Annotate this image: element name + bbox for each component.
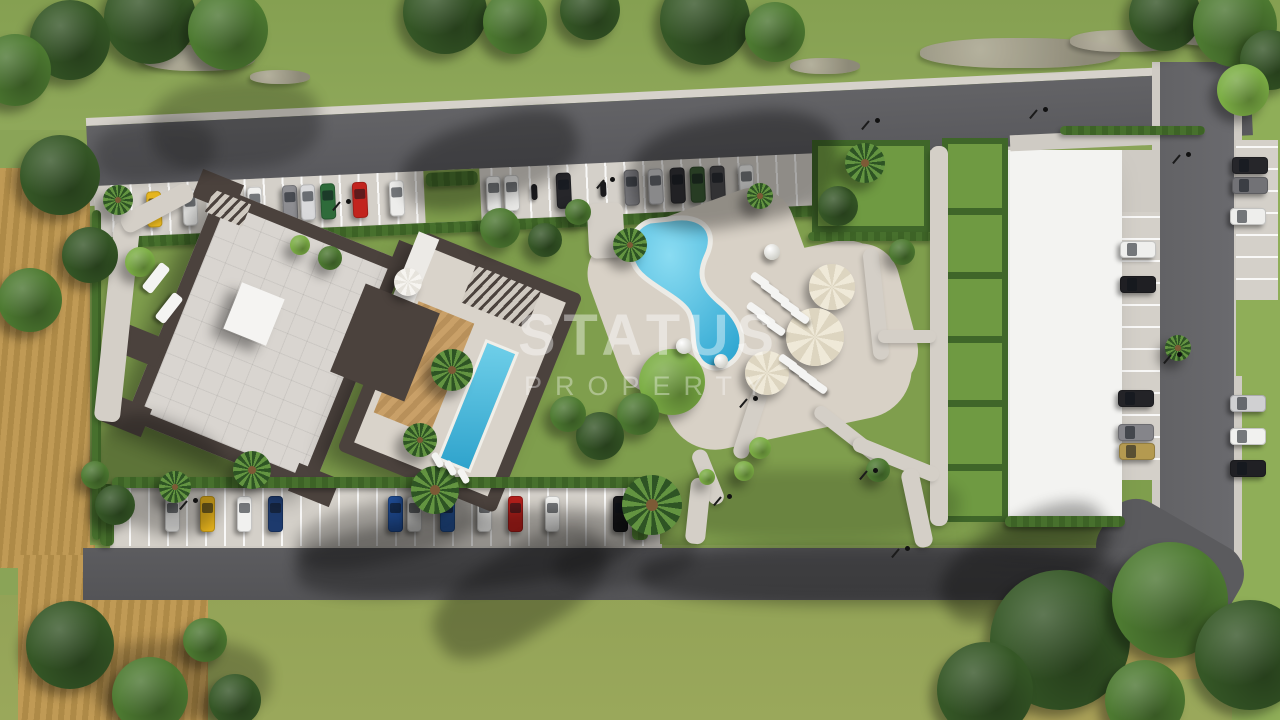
hedge-row xyxy=(948,400,1002,407)
tree xyxy=(528,223,562,257)
tree xyxy=(290,235,310,255)
lamppost xyxy=(727,494,732,499)
tree xyxy=(745,2,805,62)
tree xyxy=(183,618,227,662)
car-windshield xyxy=(239,503,250,513)
decor-sphere xyxy=(676,338,692,354)
car xyxy=(1118,390,1154,407)
palm-tree xyxy=(403,423,437,457)
palm-tree xyxy=(103,185,133,215)
tree xyxy=(20,135,100,215)
car xyxy=(1120,241,1156,258)
site-plan-rendering: STATUS PROPERTY xyxy=(0,0,1280,720)
car-windshield xyxy=(284,192,295,202)
lamppost xyxy=(346,199,351,204)
tree xyxy=(125,247,155,277)
lamppost xyxy=(1043,107,1048,112)
car-windshield xyxy=(1237,210,1247,223)
tree xyxy=(866,458,890,482)
car xyxy=(1118,424,1154,441)
hedge-row xyxy=(948,336,1002,343)
lawn-plots xyxy=(942,138,1008,522)
tree xyxy=(81,461,109,489)
parasol-umbrella xyxy=(394,268,422,296)
lamppost xyxy=(1186,152,1191,157)
tree xyxy=(0,268,62,332)
tree xyxy=(62,227,118,283)
tree xyxy=(749,437,771,459)
hedge xyxy=(1060,126,1205,135)
car-windshield xyxy=(354,189,365,199)
hedge xyxy=(808,232,933,241)
tree xyxy=(95,485,135,525)
car-windshield xyxy=(1127,278,1137,291)
rock-outcrop xyxy=(250,70,310,84)
car xyxy=(1232,177,1268,194)
palm-tree xyxy=(613,228,647,262)
lamppost xyxy=(610,177,615,182)
car-windshield xyxy=(1127,243,1137,256)
palm-tree xyxy=(431,349,473,391)
right-road xyxy=(1160,62,1234,567)
hedge-row xyxy=(948,464,1002,471)
car-windshield xyxy=(1125,426,1135,439)
car xyxy=(1232,157,1268,174)
car-windshield xyxy=(1237,462,1247,475)
car xyxy=(352,182,369,219)
car-windshield xyxy=(322,190,333,200)
tree xyxy=(1217,64,1269,116)
car xyxy=(1119,443,1155,460)
tree xyxy=(550,396,586,432)
car-windshield xyxy=(558,179,569,189)
tree xyxy=(699,469,715,485)
car xyxy=(300,184,317,221)
car xyxy=(320,183,337,220)
lamppost xyxy=(1177,352,1182,357)
rock-outcrop xyxy=(790,58,860,74)
car xyxy=(1230,208,1266,225)
tree xyxy=(734,461,754,481)
decor-sphere xyxy=(764,244,780,260)
car-windshield xyxy=(1125,392,1135,405)
tree xyxy=(209,674,261,720)
car xyxy=(1230,460,1266,477)
lamppost xyxy=(873,468,878,473)
lamppost xyxy=(905,546,910,551)
car-windshield xyxy=(1237,397,1247,410)
car-windshield xyxy=(270,503,281,513)
tree xyxy=(480,208,520,248)
walkway xyxy=(878,330,936,343)
hedge-row xyxy=(948,208,1002,215)
palm-tree xyxy=(233,451,271,489)
car xyxy=(1230,395,1266,412)
hedge xyxy=(1005,516,1125,527)
palm-tree xyxy=(622,475,682,535)
car-windshield xyxy=(1237,430,1247,443)
decor-sphere xyxy=(714,354,728,368)
tree xyxy=(565,199,591,225)
palm-tree xyxy=(747,183,773,209)
palm-tree xyxy=(845,143,885,183)
palm-tree xyxy=(159,471,191,503)
car xyxy=(268,496,283,532)
tree xyxy=(26,601,114,689)
tree xyxy=(617,393,659,435)
walkway-right-of-building xyxy=(1122,150,1160,212)
hedge-row xyxy=(948,272,1002,279)
car-windshield xyxy=(1239,159,1249,172)
tree xyxy=(318,246,342,270)
hedge xyxy=(112,477,660,488)
parasol-umbrella xyxy=(809,264,855,310)
car-windshield xyxy=(302,191,313,201)
tree xyxy=(889,239,915,265)
white-building xyxy=(1008,150,1122,518)
tree xyxy=(818,186,858,226)
car xyxy=(1230,428,1266,445)
car-windshield xyxy=(391,187,402,197)
lamppost xyxy=(193,498,198,503)
car-windshield xyxy=(1126,445,1136,458)
grass-square xyxy=(1236,300,1278,376)
car-windshield xyxy=(1239,179,1249,192)
car xyxy=(237,496,252,532)
lamppost xyxy=(753,396,758,401)
lamppost xyxy=(875,118,880,123)
car xyxy=(1120,276,1156,293)
